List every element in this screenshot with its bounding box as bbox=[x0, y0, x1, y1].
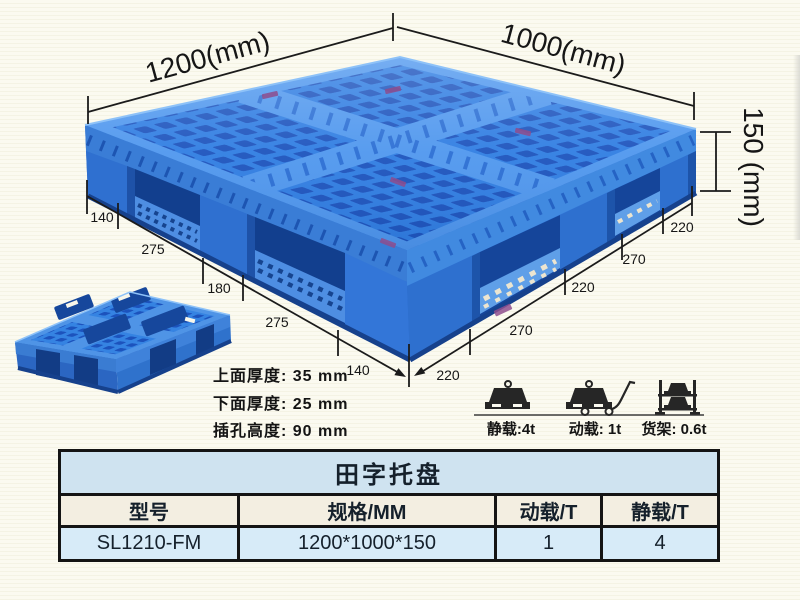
load-capacity-icons: 静载:4t 动载: 1t 货架: 0.6t bbox=[474, 380, 707, 438]
dynamic-load-icon bbox=[566, 381, 635, 415]
table-title: 田字托盘 bbox=[61, 452, 717, 496]
right-segment-label-4: 220 bbox=[670, 219, 694, 235]
table-data-row: SL1210-FM 1200*1000*150 1 4 bbox=[61, 528, 717, 559]
left-segment-label-1: 275 bbox=[141, 241, 165, 257]
rack-load-label: 货架: 0.6t bbox=[641, 420, 706, 438]
rack-load-icon bbox=[655, 380, 700, 415]
thumbnail-pallet bbox=[15, 287, 231, 392]
left-segment-label-3: 275 bbox=[265, 314, 289, 330]
table-header-row: 型号 规格/MM 动载/T 静载/T bbox=[61, 496, 717, 528]
product-spec-sheet: 1200(mm) 1000(mm) 150 (mm) bbox=[0, 0, 800, 600]
static-load-icon bbox=[485, 381, 530, 409]
top-thickness-spec: 上面厚度: 35 mm bbox=[213, 362, 433, 382]
dimension-height-150 bbox=[700, 132, 731, 191]
right-segment-label-0: 220 bbox=[436, 367, 460, 383]
product-spec-table: 田字托盘 型号 规格/MM 动载/T 静载/T SL1210-FM 1200*1… bbox=[58, 449, 720, 562]
cell-model: SL1210-FM bbox=[61, 528, 240, 559]
cell-spec: 1200*1000*150 bbox=[240, 528, 497, 559]
dynamic-load-label: 动载: 1t bbox=[569, 420, 622, 438]
right-segment-label-2: 220 bbox=[571, 279, 595, 295]
cell-static-load: 4 bbox=[603, 528, 717, 559]
fork-hole-height-spec: 插孔高度: 90 mm bbox=[213, 417, 433, 437]
static-load-label: 静载:4t bbox=[487, 420, 535, 438]
left-segment-label-0: 140 bbox=[90, 209, 114, 225]
column-header-dynamic-load: 动载/T bbox=[497, 496, 603, 525]
height-dimension-label: 150 (mm) bbox=[738, 107, 769, 227]
column-header-model: 型号 bbox=[61, 496, 240, 525]
left-segment-label-2: 180 bbox=[207, 280, 231, 296]
column-header-static-load: 静载/T bbox=[603, 496, 717, 525]
bottom-thickness-spec: 下面厚度: 25 mm bbox=[213, 390, 433, 410]
cell-dynamic-load: 1 bbox=[497, 528, 603, 559]
right-segment-label-3: 270 bbox=[622, 251, 646, 267]
right-segment-label-1: 270 bbox=[509, 322, 533, 338]
column-header-spec: 规格/MM bbox=[240, 496, 497, 525]
scan-edge-artifact bbox=[793, 55, 800, 240]
